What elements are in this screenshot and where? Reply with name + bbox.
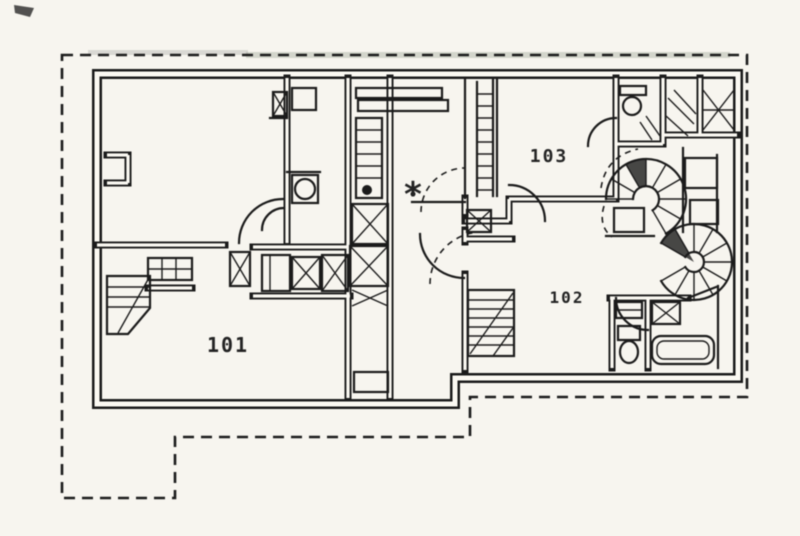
corridor-stair-core bbox=[350, 88, 448, 392]
door-arc bbox=[420, 234, 464, 278]
door-arc-dashed bbox=[421, 168, 465, 212]
refrigerator bbox=[262, 255, 290, 291]
door-arc bbox=[239, 199, 283, 243]
chase-tick-marks bbox=[477, 94, 493, 190]
closet-shelf bbox=[358, 100, 448, 111]
sink-icon bbox=[295, 179, 315, 199]
floor-plan-canvas: 101 102 103 * bbox=[0, 0, 800, 536]
room-label-102: 102 bbox=[550, 288, 585, 307]
room-label-103: 103 bbox=[530, 146, 569, 167]
property-boundary bbox=[62, 55, 747, 498]
toilet-icon bbox=[620, 341, 638, 363]
asterisk-marker: * bbox=[403, 175, 425, 215]
spiral-staircase-lower bbox=[661, 224, 732, 300]
sink-icon bbox=[623, 97, 641, 115]
unit102-staircase bbox=[467, 210, 514, 356]
closet bbox=[685, 158, 717, 188]
stair-post bbox=[362, 185, 372, 195]
entry-step bbox=[354, 372, 388, 392]
bathtub-icon bbox=[652, 336, 714, 364]
unit101-fixtures bbox=[107, 258, 192, 334]
room-label-101: 101 bbox=[207, 333, 249, 357]
center-marker: * bbox=[403, 175, 425, 215]
door-arc bbox=[262, 208, 284, 230]
door-arc bbox=[588, 118, 616, 146]
interior-walls bbox=[97, 78, 737, 398]
door-arc bbox=[509, 185, 545, 221]
building-outline bbox=[97, 74, 738, 404]
scan-artifacts bbox=[14, 5, 730, 58]
room-labels: 101 102 103 bbox=[207, 146, 585, 357]
vanity bbox=[620, 86, 646, 95]
floor-plan-page: 101 102 103 * bbox=[0, 0, 800, 536]
bathroom-bottom-fixtures bbox=[616, 302, 714, 364]
closet-shelf bbox=[356, 88, 442, 98]
basement-stair bbox=[107, 276, 150, 334]
landing-box bbox=[614, 208, 644, 232]
closet bbox=[690, 200, 718, 224]
